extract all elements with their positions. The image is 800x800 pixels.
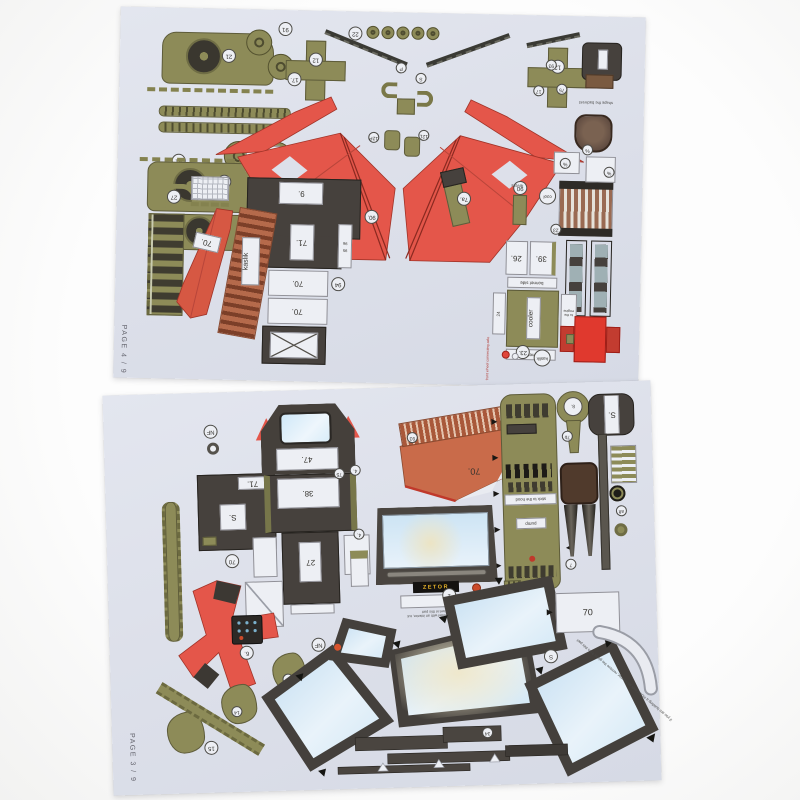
keyhole-label: 8. xyxy=(567,402,579,409)
page-number-label: PAGE 3 / 9 xyxy=(128,733,136,783)
engine-strip-detail xyxy=(508,481,552,492)
engine-label-box: 70. xyxy=(267,298,328,325)
keyhole-part xyxy=(555,390,593,455)
cross-connector xyxy=(566,334,574,344)
bonnet-box: 26. xyxy=(505,241,528,275)
wiper-strip xyxy=(426,33,510,68)
cushion-part xyxy=(560,462,599,505)
part-number-circle: NF xyxy=(203,425,217,439)
rod-part xyxy=(598,434,611,570)
glue-mark xyxy=(493,491,502,497)
engine-comb xyxy=(506,463,552,478)
small-roller xyxy=(366,26,379,39)
glue-mark xyxy=(494,527,503,533)
gearbox-chip xyxy=(203,537,217,546)
glue-mark xyxy=(492,455,501,461)
backrest-note: shape the backrest xyxy=(571,100,621,106)
segment-strip: 9695 xyxy=(338,224,353,268)
part-number-circle: 17 xyxy=(533,85,544,96)
seat-s-stripe: S. xyxy=(604,395,620,433)
orange-wedge-part xyxy=(176,206,236,323)
flower-wheel-part xyxy=(609,485,625,501)
part-number-circle: 91 xyxy=(278,22,292,36)
glue-mark xyxy=(491,419,500,425)
engine-label-box: 71. xyxy=(290,224,315,260)
percent-circle: % xyxy=(582,144,593,155)
red-cross-part xyxy=(574,316,607,363)
part-number-circle: 70 xyxy=(225,554,239,568)
glue-mark xyxy=(547,609,556,615)
pump-label: pump xyxy=(516,517,546,529)
cab-side-tab xyxy=(253,537,278,578)
levers-part xyxy=(512,195,527,225)
engine-strip-detail xyxy=(506,403,550,418)
crossed-box xyxy=(270,332,319,359)
part-number-circle: S xyxy=(415,73,426,84)
red-dot-part xyxy=(529,556,535,562)
panel-70-box: 70 xyxy=(555,591,620,633)
small-roller xyxy=(411,27,424,40)
paper-sheet-page-3: PAGE 3 / 9 NF NF 71. S. 47. 38. 4. 75 27… xyxy=(103,380,662,795)
cooler-label: cooler xyxy=(526,297,541,339)
hood-label-box: 70. xyxy=(457,461,491,480)
cab-window xyxy=(279,411,332,444)
gearbox-s-box: S. xyxy=(220,504,247,531)
part-number-circle: 94 xyxy=(331,277,345,291)
grille-panel xyxy=(590,240,613,316)
product-photo: { "top_sheet": { "page_label": "PAGE 4 /… xyxy=(0,0,800,800)
part-number-circle: P xyxy=(396,62,407,73)
small-roller xyxy=(396,26,409,39)
bonnet-side-strip: bonnet side xyxy=(507,277,557,289)
axle-note: front wheel connecting axle xyxy=(485,330,491,386)
part-number-circle: 4. xyxy=(350,465,361,476)
page-number-label: PAGE 4 / 9 xyxy=(119,325,127,375)
panel-band xyxy=(558,228,612,237)
bonnet-box: 39. xyxy=(529,241,556,276)
part-number-circle: 15 xyxy=(204,741,218,755)
seat-backrest-part xyxy=(574,114,613,153)
stick-hood-label: stick to the hood xyxy=(504,493,556,505)
cab-label-box: 47. xyxy=(276,447,339,471)
engine-label-box: 9. xyxy=(279,182,323,205)
levers-label: levers xyxy=(503,183,531,189)
strap-slot xyxy=(598,50,608,70)
washer-part xyxy=(207,442,219,454)
seat-base-part xyxy=(585,74,613,89)
mini-ladder-part xyxy=(610,445,637,484)
engine-strip-detail xyxy=(506,424,536,435)
small-roller xyxy=(426,27,439,40)
washer-part xyxy=(614,523,627,536)
diagonal-strip xyxy=(526,32,580,48)
radiator-label: kaslik xyxy=(241,237,260,285)
paper-sheet-page-4: PAGE 4 / 9 91 21 91 21 27 22 12 17. 12 1… xyxy=(113,7,646,389)
part-word-circle: kaslik xyxy=(533,349,550,366)
red-cross-flap xyxy=(606,327,621,353)
engine-label-box: 70. xyxy=(268,270,329,297)
part-word-circle: alt xyxy=(616,505,627,516)
small-roller xyxy=(381,26,394,39)
part-number-circle: 17. xyxy=(287,72,301,86)
cab-label-box: 38. xyxy=(277,477,340,509)
side-24-box: 24 xyxy=(492,292,506,334)
windshield-glass xyxy=(382,512,489,569)
fork-part xyxy=(582,504,597,556)
